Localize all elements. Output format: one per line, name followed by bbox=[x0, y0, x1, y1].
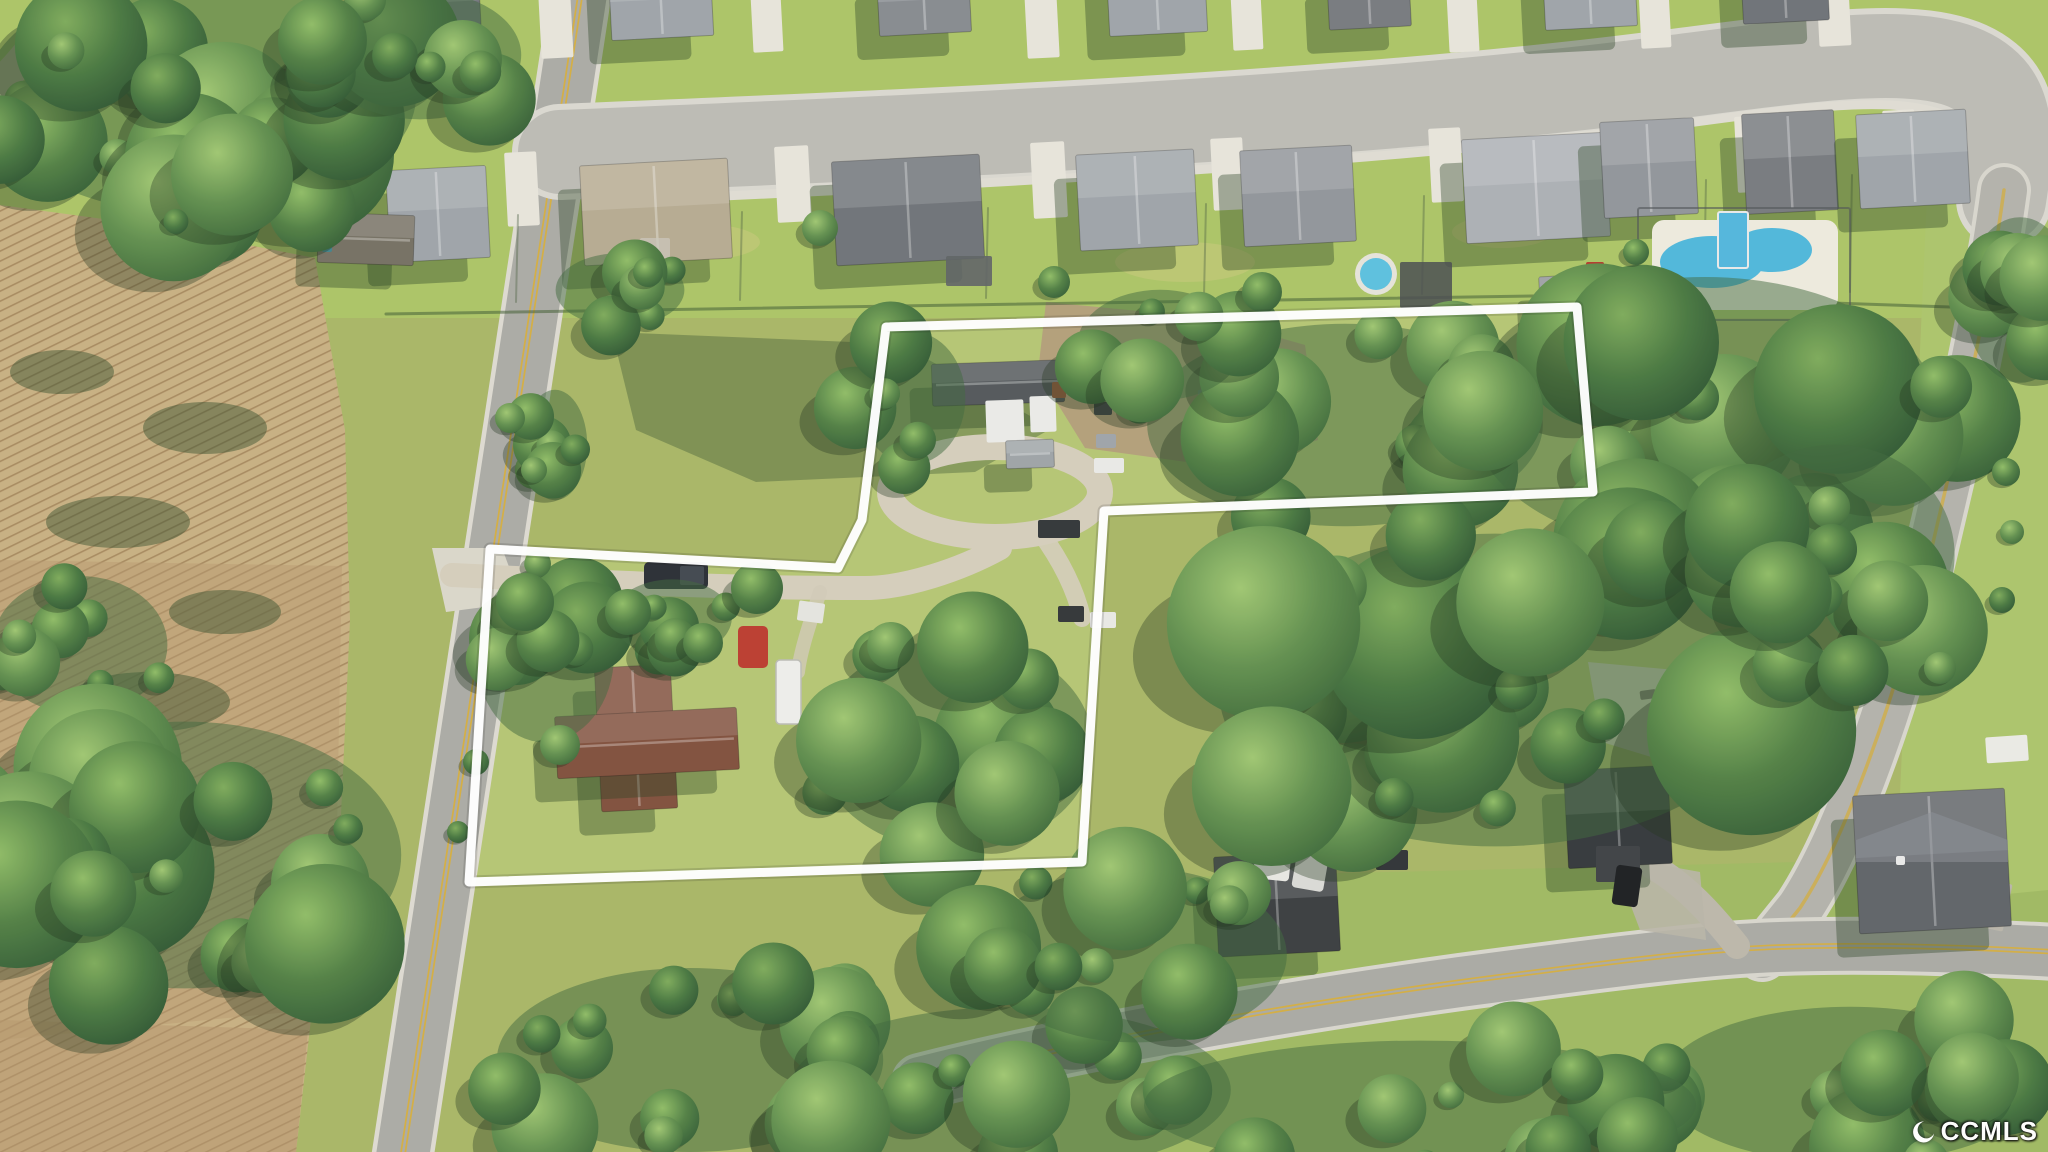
watermark-text: CCMLS bbox=[1941, 1116, 2038, 1147]
watermark: CCMLS bbox=[1911, 1116, 2038, 1147]
aerial-scene bbox=[0, 0, 2048, 1152]
crescent-moon-icon bbox=[1911, 1120, 1935, 1144]
aerial-property-photo: CCMLS bbox=[0, 0, 2048, 1152]
sunlight-haze bbox=[0, 0, 2048, 1152]
